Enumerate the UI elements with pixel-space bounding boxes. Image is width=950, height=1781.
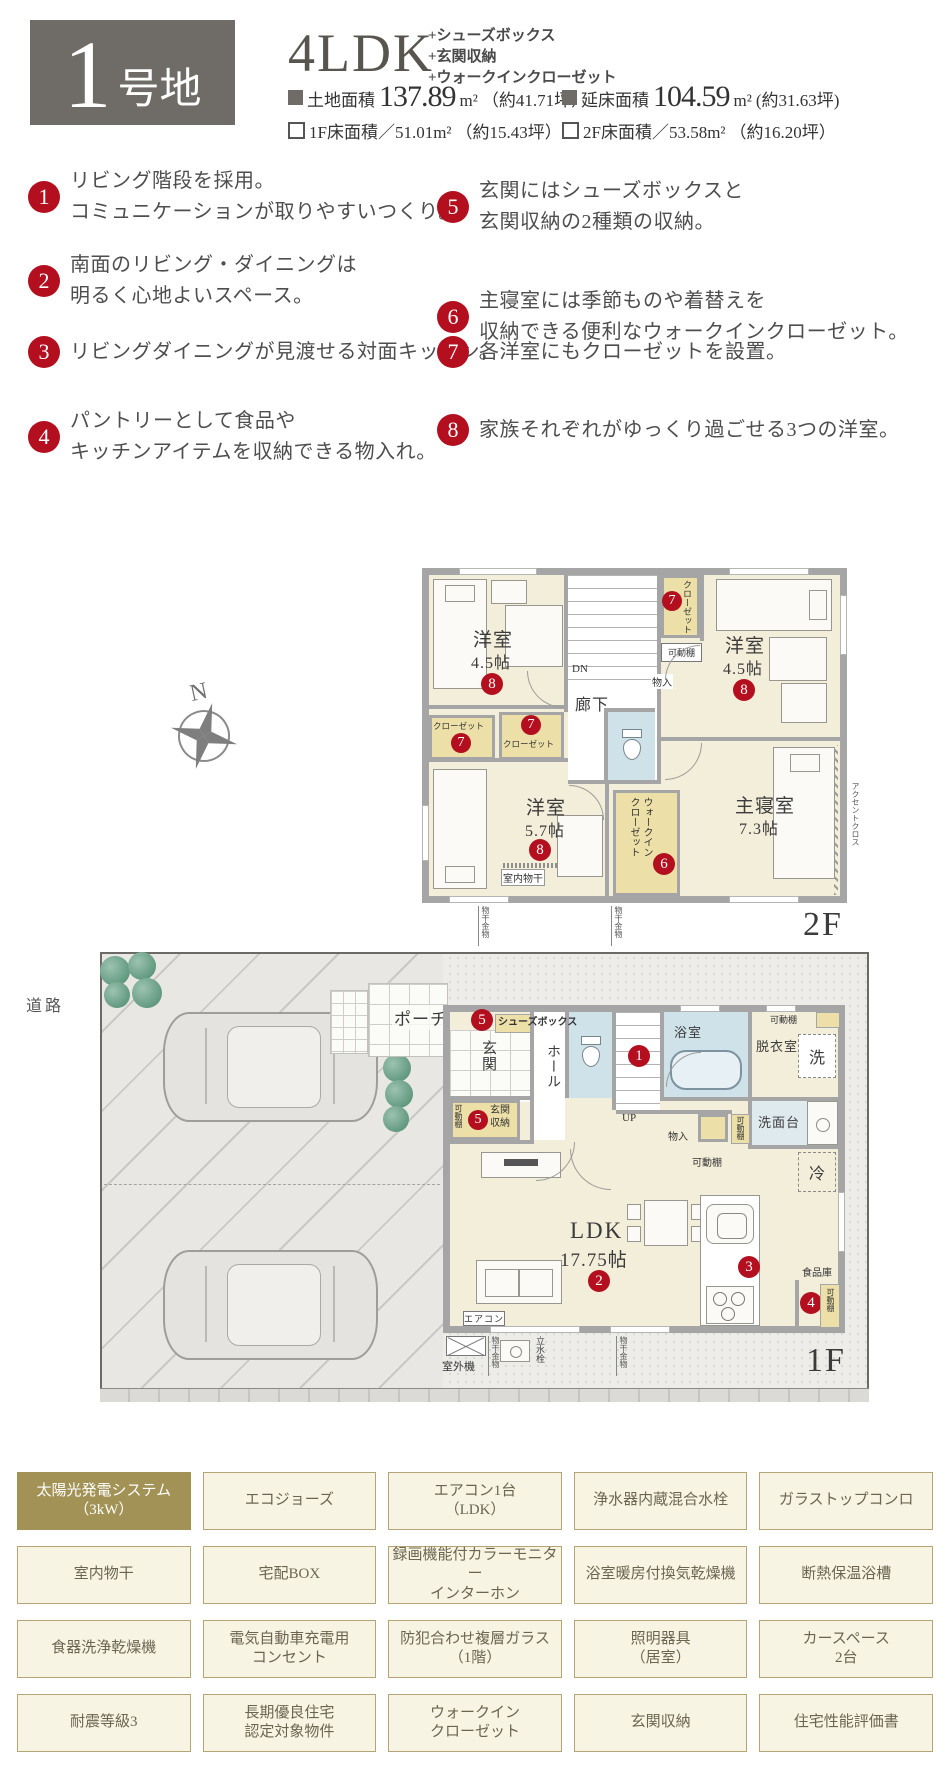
compass-north-label: N: [188, 678, 210, 707]
shrub-icon: [132, 978, 162, 1008]
tag-seismic-grade: 耐震等級3: [17, 1694, 191, 1752]
pantry-label: 食品庫: [802, 1264, 832, 1279]
shrub-icon: [385, 1080, 413, 1108]
washer-label: 洗: [809, 1044, 825, 1068]
plan-badge-7: 7: [451, 733, 471, 753]
tv-icon: [504, 1159, 538, 1166]
tag-solar: 太陽光発電システム （3kW）: [17, 1472, 191, 1530]
ldk-label: LDK: [570, 1218, 623, 1244]
aircon-label: エアコン: [463, 1311, 505, 1326]
drying-hardware-label: 物干金物: [488, 1336, 501, 1376]
plan-badge-1: 1: [628, 1045, 650, 1067]
feature-5: 5 玄関にはシューズボックスと玄関収納の2種類の収納。: [437, 176, 744, 238]
dining-table-icon: [644, 1200, 688, 1246]
vanity-label: 洗面台: [758, 1112, 800, 1131]
adjustable-shelf-label: 可動棚: [692, 1154, 722, 1169]
feature-3-text: リビングダイニングが見渡せる対面キッチン。: [70, 337, 499, 368]
tag-ecojozu: エコジョーズ: [203, 1472, 377, 1530]
compass-rose-icon: N: [162, 678, 246, 774]
outline-square-icon: [562, 122, 579, 139]
bedroom-ne-size: 4.5帖: [723, 655, 763, 679]
wall-segment: [450, 1140, 534, 1144]
window: [838, 1192, 845, 1252]
feature-5-text: 玄関にはシューズボックスと玄関収納の2種類の収納。: [479, 176, 744, 238]
genkan-label: 玄関: [478, 1040, 499, 1084]
bedroom-nw-size: 4.5帖: [471, 649, 511, 673]
outdoor-unit-icon: [446, 1336, 486, 1356]
stairs-down-label: DN: [572, 663, 588, 675]
fridge-label: 冷: [809, 1160, 825, 1184]
drying-hardware-label: 物干金物: [611, 906, 624, 946]
window: [490, 1326, 580, 1333]
shrub-icon: [383, 1106, 409, 1132]
pillow-icon: [809, 590, 827, 620]
plan-extra-2: +玄関収納: [428, 47, 617, 68]
pantry-shelf: 可動棚: [820, 1284, 840, 1328]
plan-extra-1: +シューズボックス: [428, 26, 617, 47]
burner: [713, 1292, 727, 1306]
window: [840, 595, 847, 655]
chair-icon: [627, 1204, 641, 1220]
feature-4: 4 パントリーとして食品やキッチンアイテムを収納できる物入れ。: [28, 406, 437, 468]
hall-label: ホール: [542, 1044, 562, 1110]
pillow-icon: [445, 585, 475, 602]
shrub-icon: [383, 1054, 411, 1082]
corner-shelf: [816, 1012, 840, 1028]
plan-badge-8: 8: [733, 679, 755, 701]
tag-genkan-storage: 玄関収納: [574, 1694, 748, 1752]
shrub-icon: [104, 982, 130, 1008]
closet-w1-label: クローゼット: [433, 720, 484, 732]
genkan-storage-label: 玄関収納: [490, 1104, 514, 1130]
tag-delivery-box: 宅配BOX: [203, 1546, 377, 1604]
tag-security-glass: 防犯合わせ複層ガラス （1階）: [388, 1620, 562, 1678]
pillow-icon: [790, 754, 820, 772]
floor-area-1f-tsubo: （約15.43坪）: [456, 118, 562, 143]
plan-2f-outline: DN 廊下 クローゼット 7 可動棚 物入: [422, 568, 847, 903]
window: [766, 1005, 796, 1012]
plan-badge-5: 5: [468, 1110, 488, 1130]
door-arc: [527, 671, 564, 708]
wall-segment: [568, 780, 661, 784]
sofa-cushion: [519, 1269, 553, 1297]
land-area: 土地面積 137.89 m² （約41.71坪）: [288, 80, 588, 114]
ldk-size: 17.75帖: [560, 1245, 628, 1272]
equipment-tags: 太陽光発電システム （3kW） エコジョーズ エアコン1台 （LDK） 浄水器内…: [17, 1472, 933, 1752]
tag-performance-report: 住宅性能評価書: [759, 1694, 933, 1752]
wall-segment: [748, 1145, 838, 1149]
plan-badge-4: 4: [800, 1292, 822, 1314]
feature-8-text: 家族それぞれがゆっくり過ごせる3つの洋室。: [479, 415, 900, 446]
floor-area-2f-text: 2F床面積／53.58m²: [583, 118, 726, 143]
wall-segment: [795, 1280, 799, 1326]
floor-area-2f: 2F床面積／53.58m² （約16.20坪）: [562, 118, 836, 143]
car-line: [205, 1028, 207, 1104]
tag-car-space: カースペース 2台: [759, 1620, 933, 1678]
car-line: [333, 1266, 335, 1342]
drying-hardware-label: 物干金物: [616, 1336, 629, 1376]
total-floor-area-tsubo: (約31.63坪): [756, 86, 840, 111]
desk-icon: [769, 637, 827, 681]
plan-type: 4LDK: [288, 22, 434, 84]
paving-joint: [104, 1184, 440, 1185]
wall-segment: [429, 705, 568, 709]
bedroom-nw-label: 洋室: [473, 625, 513, 652]
floor-plan-1f: 道路 ポーチ: [0, 950, 950, 1410]
filled-square-icon: [562, 90, 577, 105]
porch-label: ポーチ: [392, 1005, 450, 1030]
plan-badge-2: 2: [588, 1270, 610, 1292]
closet-ne-label: クローゼット: [681, 580, 694, 634]
feature-7-text: 各洋室にもクローゼットを設置。: [479, 337, 787, 368]
cabinet-icon: [781, 683, 827, 723]
feature-2-text: 南面のリビング・ダイニングは明るく心地よいスペース。: [70, 250, 357, 312]
land-area-value: 137.89: [379, 80, 456, 114]
dressing-room-label: 脱衣室: [756, 1036, 798, 1055]
faucet-bowl: [510, 1346, 522, 1358]
tag-glass-top-stove: ガラストップコンロ: [759, 1472, 933, 1530]
lot-number: 1: [63, 25, 111, 125]
approach-pavers: [330, 990, 368, 1054]
wall-segment: [700, 575, 704, 641]
outline-square-icon: [288, 122, 305, 139]
feature-8-number: 8: [437, 414, 469, 446]
tag-aircon: エアコン1台 （LDK）: [388, 1472, 562, 1530]
road-edge-paving: [100, 1388, 869, 1402]
storage-closet: [698, 1114, 728, 1142]
plan-badge-7: 7: [662, 591, 682, 611]
faucet-icon: [500, 1340, 530, 1362]
window: [610, 1326, 670, 1333]
feature-3: 3 リビングダイニングが見渡せる対面キッチン。: [28, 336, 499, 368]
drying-hardware-label: 物干金物: [478, 906, 491, 946]
door-arc: [665, 743, 702, 780]
adjustable-shelf-label: 可動棚: [453, 1104, 464, 1136]
window: [459, 568, 537, 575]
door-arc: [536, 1142, 575, 1181]
plan-badge-5: 5: [471, 1009, 493, 1031]
car-roof: [227, 1264, 321, 1346]
feature-5-number: 5: [437, 191, 469, 223]
feature-2: 2 南面のリビング・ダイニングは明るく心地よいスペース。: [28, 250, 357, 312]
closet-w2-label: クローゼット: [503, 738, 554, 750]
plan-badge-6: 6: [653, 853, 675, 875]
total-floor-area-value: 104.59: [653, 80, 730, 114]
outdoor-unit-label: 室外機: [442, 1358, 475, 1374]
kitchen-sink-icon: [706, 1204, 754, 1244]
master-bedroom-label: 主寝室: [735, 791, 795, 818]
chair-icon: [627, 1226, 641, 1242]
storage-label: 物入: [668, 1128, 688, 1143]
feature-7: 7 各洋室にもクローゼットを設置。: [437, 336, 787, 368]
tag-intercom: 録画機能付カラーモニター インターホン: [388, 1546, 562, 1604]
total-floor-area-label: 延床面積: [581, 86, 649, 111]
fridge-space: 冷: [798, 1152, 836, 1192]
feature-4-number: 4: [28, 421, 60, 453]
window: [449, 896, 509, 903]
adjustable-shelf-label: 可動棚: [825, 1288, 836, 1326]
road-label: 道路: [26, 992, 64, 1016]
car-roof: [227, 1026, 321, 1108]
door-arc: [569, 785, 604, 820]
vanity-icon: [807, 1101, 838, 1145]
walk-in-closet-label: ウォークイン クローゼット: [627, 797, 653, 883]
plan-1f-outline: 玄関 ホール 可動棚 5 玄関収納 1 UP: [443, 1005, 845, 1333]
tag-long-term-housing: 長期優良住宅 認定対象物件: [203, 1694, 377, 1752]
toilet-icon: [622, 729, 642, 761]
pillow-icon: [445, 866, 475, 883]
floor-area-total: 延床面積 104.59 m² (約31.63坪): [562, 80, 839, 114]
plan-badge-7: 7: [521, 715, 541, 735]
filled-square-icon: [288, 90, 303, 105]
indoor-drying-label: 室内物干: [501, 869, 545, 886]
bedroom-sw-size: 5.7帖: [525, 817, 565, 841]
door-arc: [570, 1149, 611, 1190]
floor-area-1f-text: 1F床面積／51.01m²: [309, 118, 452, 143]
feature-7-number: 7: [437, 336, 469, 368]
window: [729, 896, 799, 903]
lot-number-suffix: 号地: [117, 69, 201, 111]
feature-2-number: 2: [28, 265, 60, 297]
washer-space: 洗: [798, 1034, 836, 1078]
burner: [731, 1292, 745, 1306]
plan-badge-8: 8: [529, 839, 551, 861]
land-area-label: 土地面積: [307, 86, 375, 111]
tag-lighting: 照明器具 （居室）: [574, 1620, 748, 1678]
feature-1: 1 リビング階段を採用。コミュニケーションが取りやすいつくり。: [28, 166, 459, 228]
adjustable-shelf-label: 可動棚: [770, 1013, 797, 1026]
tag-bath-dryer: 浴室暖房付換気乾燥機: [574, 1546, 748, 1604]
tag-ev-outlet: 電気自動車充電用 コンセント: [203, 1620, 377, 1678]
sofa-cushion: [485, 1269, 519, 1297]
floor-2f-caption: 2F: [803, 906, 843, 944]
bathroom-label: 浴室: [674, 1022, 702, 1041]
tag-indoor-drying: 室内物干: [17, 1546, 191, 1604]
car-line: [205, 1266, 207, 1342]
feature-8: 8 家族それぞれがゆっくり過ごせる3つの洋室。: [437, 414, 900, 446]
floor-1f-caption: 1F: [806, 1342, 846, 1380]
wall-segment: [564, 575, 568, 712]
tag-dishwasher: 食器洗浄乾燥機: [17, 1620, 191, 1678]
shrub-icon: [128, 952, 156, 980]
wall-segment: [661, 737, 840, 741]
faucet-label: 立水栓: [534, 1336, 547, 1372]
accent-wall-mark: [834, 745, 838, 895]
floor-area-1f: 1F床面積／51.01m² （約15.43坪）: [288, 118, 562, 143]
car-icon: [163, 1250, 378, 1360]
bed-icon: [433, 769, 487, 889]
land-area-unit: m²: [460, 91, 478, 111]
feature-6-number: 6: [437, 301, 469, 333]
plan-badge-8: 8: [481, 673, 503, 695]
accent-cross-label: アクセントクロス: [850, 782, 861, 852]
lot-number-box: 1 号地: [30, 20, 235, 125]
toilet-room-2f: [608, 712, 655, 780]
feature-3-number: 3: [28, 336, 60, 368]
sofa-icon: [476, 1260, 562, 1304]
sink-bowl-icon: [816, 1118, 830, 1132]
floor-area-2f-tsubo: （約16.20坪）: [730, 118, 836, 143]
total-floor-area-unit: m²: [734, 91, 752, 111]
window: [422, 805, 429, 861]
bedroom-sw-label: 洋室: [526, 793, 566, 820]
sink-basin: [717, 1213, 747, 1239]
shoes-box-label: シューズボックス: [498, 1013, 577, 1028]
tag-insulated-tub: 断熱保温浴槽: [759, 1546, 933, 1604]
window: [680, 1005, 720, 1012]
shelf-icon: [491, 580, 527, 604]
shelf-unit: 可動棚: [731, 1114, 750, 1144]
floor-plan-2f: N DN 廊下: [0, 490, 950, 950]
stove-icon: [706, 1286, 754, 1324]
feature-1-text: リビング階段を採用。コミュニケーションが取りやすいつくり。: [70, 166, 459, 228]
window: [729, 568, 809, 575]
plan-badge-3: 3: [738, 1256, 760, 1278]
feature-1-number: 1: [28, 181, 60, 213]
bed-icon: [716, 579, 832, 631]
desk-icon: [505, 605, 563, 667]
tag-walk-in-closet: ウォークイン クローゼット: [388, 1694, 562, 1752]
bedroom-ne-label: 洋室: [725, 631, 765, 658]
flyer-page: 1 号地 4LDK +シューズボックス +玄関収納 +ウォークインクローゼット …: [0, 0, 950, 1781]
indoor-drying-icon: [503, 863, 557, 868]
master-bedroom-size: 7.3帖: [739, 815, 779, 839]
feature-4-text: パントリーとして食品やキッチンアイテムを収納できる物入れ。: [70, 406, 437, 468]
adjustable-shelf-label: 可動棚: [735, 1116, 746, 1142]
toilet-icon: [581, 1036, 601, 1068]
tag-water-purifier: 浄水器内蔵混合水栓: [574, 1472, 748, 1530]
burner: [721, 1307, 735, 1321]
